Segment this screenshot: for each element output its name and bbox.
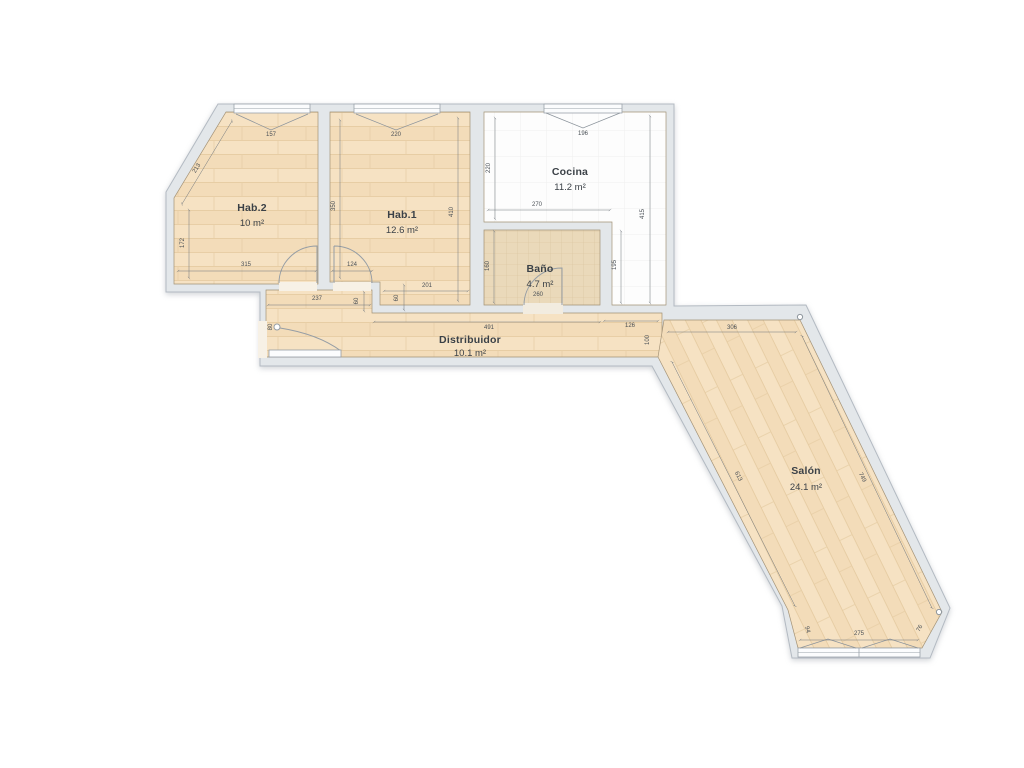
room-label-cocina: Cocina (552, 166, 588, 178)
hab2-floor (174, 112, 318, 284)
dim-cocina-left: 220 (486, 162, 492, 173)
room-area-salon: 24.1 m² (790, 482, 822, 493)
room-label-hab1: Hab.1 (387, 209, 417, 221)
room-area-cocina: 11.2 m² (554, 182, 586, 193)
dim-hab2-bottom: 315 (241, 262, 252, 268)
room-label-salon: Salón (791, 465, 821, 477)
hab2-door-threshold (279, 282, 317, 291)
dim-dist-step: 60 (354, 297, 360, 304)
dim-cocina-right: 415 (640, 208, 646, 219)
dim-cocina-width: 270 (532, 202, 543, 208)
corner-marker-right (936, 609, 941, 614)
dim-hab1-step: 60 (394, 294, 400, 301)
corner-marker-top (797, 314, 802, 319)
room-label-hab2: Hab.2 (237, 202, 267, 214)
dim-bano-width: 260 (533, 292, 544, 298)
dim-cocina-window: 196 (578, 131, 589, 137)
floor-plan-page: 157 213 172 315 220 350 410 124 60 201 1… (0, 0, 1024, 768)
dim-hab1-left: 350 (331, 200, 337, 211)
dim-dist-main: 491 (484, 325, 495, 331)
dim-bano-left: 160 (485, 260, 491, 271)
room-area-bano: 4.7 m² (527, 279, 554, 290)
dim-cocina-inner: 195 (612, 259, 618, 270)
dim-hab2-left: 172 (180, 237, 186, 248)
dim-hab1-door: 124 (347, 262, 358, 268)
hab1-door-threshold (333, 282, 371, 291)
dim-dist-right-h: 100 (645, 334, 651, 345)
dim-dist-entry: 80 (268, 323, 274, 330)
dim-hab1-window: 220 (391, 132, 402, 138)
room-area-distribuidor: 10.1 m² (454, 348, 486, 359)
dim-hab1-bottom: 201 (422, 283, 433, 289)
dim-salon-window: 275 (854, 631, 865, 637)
floor-plan-drawing: 157 213 172 315 220 350 410 124 60 201 1… (0, 0, 1024, 768)
entrance-door-leaf (269, 350, 341, 357)
bano-door-threshold (523, 303, 563, 314)
dim-salon-top: 306 (727, 325, 738, 331)
entrance-door-hinge (274, 324, 280, 330)
dim-dist-right: 126 (625, 323, 636, 329)
room-area-hab1: 12.6 m² (386, 225, 418, 236)
dim-hab2-window: 157 (266, 132, 277, 138)
dim-hab1-right: 410 (449, 206, 455, 217)
room-label-bano: Baño (526, 263, 553, 275)
room-area-hab2: 10 m² (240, 218, 264, 229)
dim-dist-width: 237 (312, 296, 323, 302)
entrance-door-threshold (258, 321, 267, 358)
room-label-distribuidor: Distribuidor (439, 334, 501, 346)
